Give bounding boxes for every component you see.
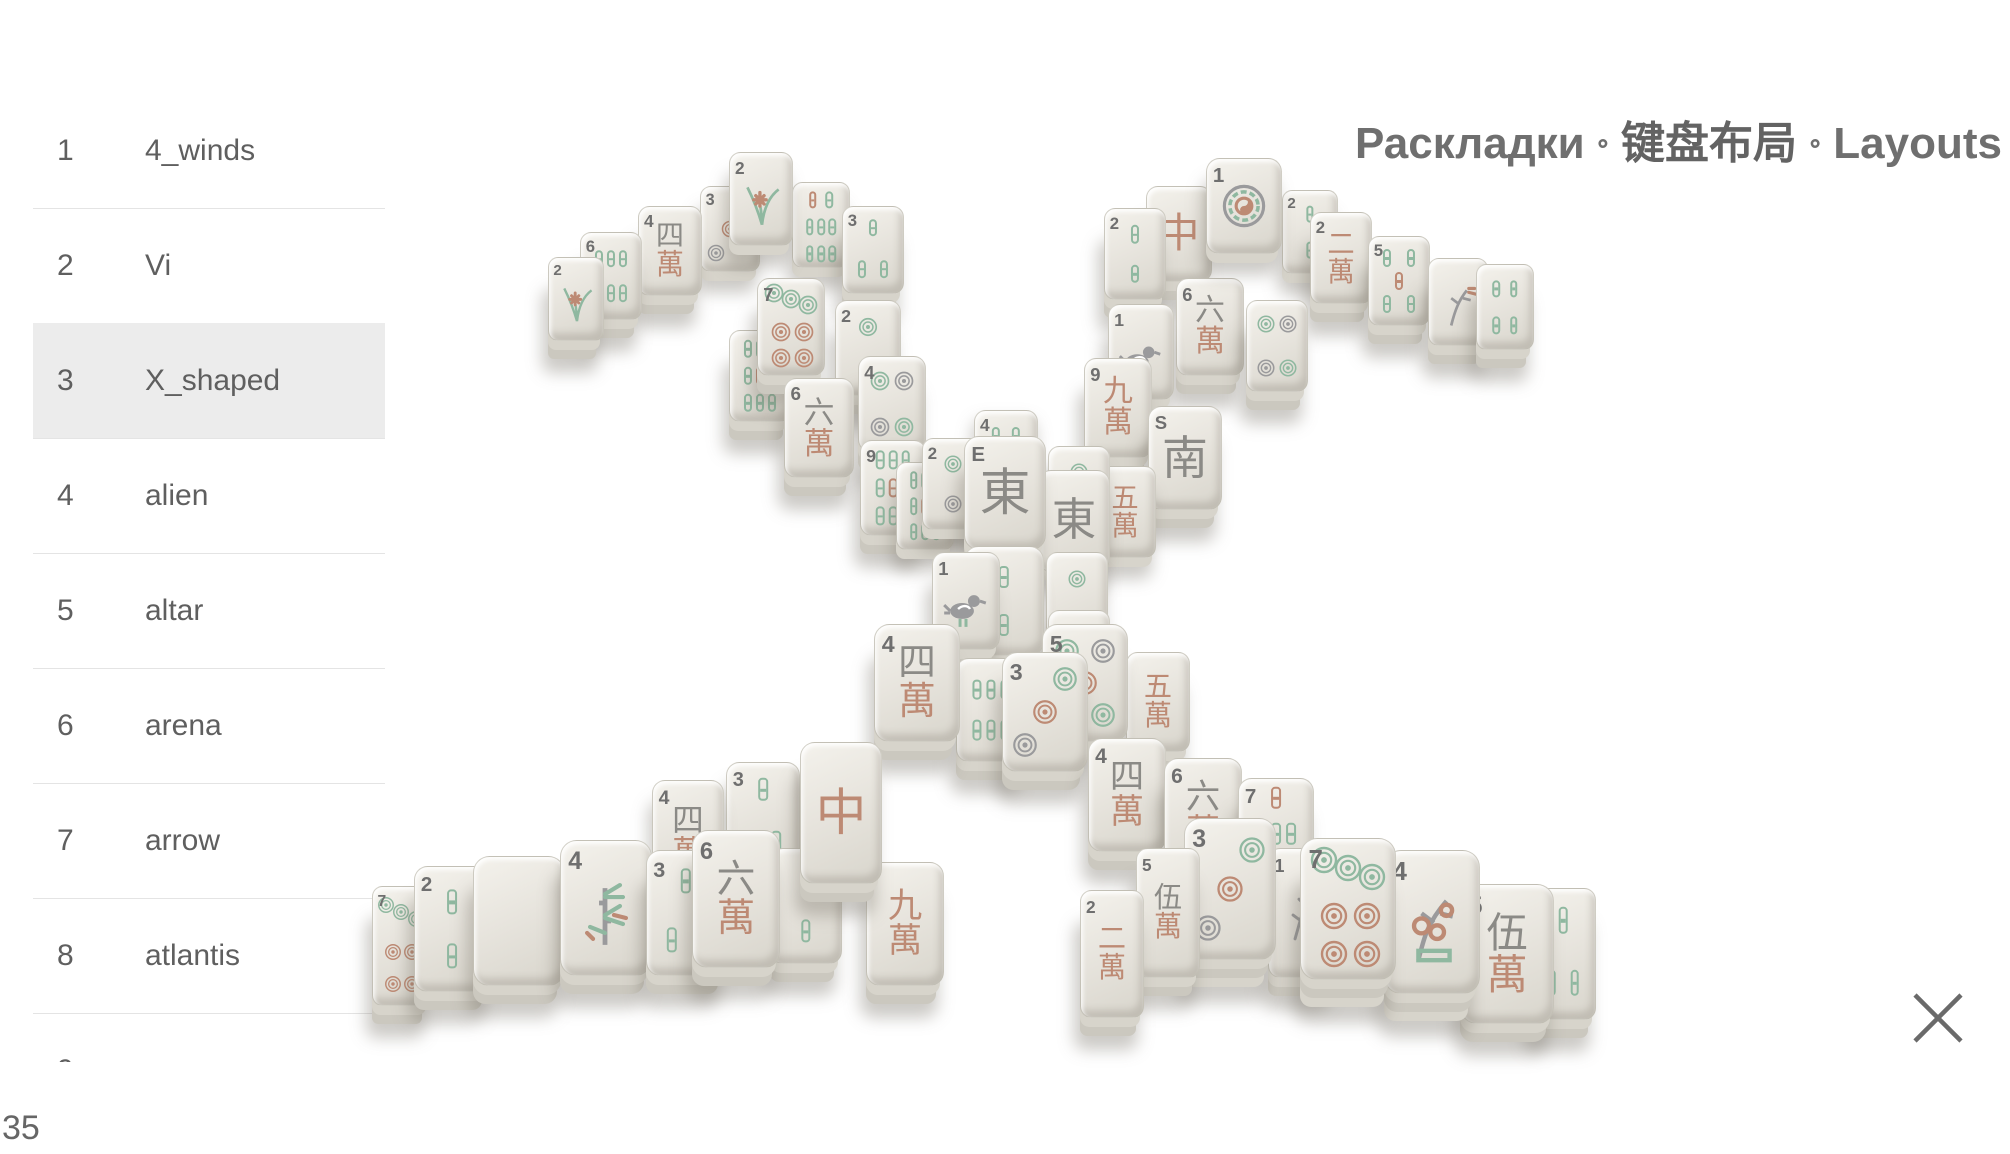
bamboo-stick-icon xyxy=(1383,249,1391,267)
bamboo-notch xyxy=(1409,257,1413,259)
bamboo-stick-icon xyxy=(876,450,885,469)
bamboo-notch xyxy=(912,505,916,507)
tile-rank: 2 xyxy=(553,262,561,279)
dot-icon xyxy=(1257,315,1276,334)
bamboo-stick-icon xyxy=(973,679,982,700)
tile-rank: 4 xyxy=(1095,745,1107,769)
bamboo-notch xyxy=(1561,919,1566,923)
dot-icon xyxy=(798,295,818,315)
bamboo-stick-icon xyxy=(607,250,615,268)
tile-rank: 6 xyxy=(1171,765,1183,789)
tile-rank: 4 xyxy=(644,211,654,232)
bamboo-notch xyxy=(1001,624,1007,627)
mahjong-tile-man-2: 2二萬 xyxy=(1310,212,1372,304)
tile-character: 東 xyxy=(980,467,1031,519)
dot-icon xyxy=(870,416,890,436)
tile-face: 4四萬 xyxy=(1089,739,1165,851)
dot-icon xyxy=(944,495,963,514)
dot-icon xyxy=(1358,862,1387,891)
tile-rank: 3 xyxy=(653,857,665,883)
bamboo-stick-icon xyxy=(826,191,834,208)
dot-icon xyxy=(1238,836,1266,864)
tile-character: 伍 xyxy=(1486,912,1527,954)
bamboo-stick-icon xyxy=(876,507,885,526)
dot-icon xyxy=(858,317,878,337)
bamboo-stick-icon xyxy=(667,928,677,953)
bamboo-stick-icon xyxy=(756,394,764,412)
bamboo-stick-icon xyxy=(801,919,810,942)
mahjong-tile-man-6: 6六萬 xyxy=(692,830,780,968)
bamboo-stick-icon xyxy=(607,284,615,302)
bamboo-notch xyxy=(746,348,750,350)
tile-face: 7 xyxy=(758,279,824,375)
bamboo-stick-icon xyxy=(744,367,752,385)
bamboo-notch xyxy=(988,689,993,692)
tile-rank: 4 xyxy=(980,415,990,436)
dot-icon xyxy=(1220,182,1267,229)
bamboo-notch xyxy=(878,487,883,489)
mahjong-tile-dots-1: 1 xyxy=(1206,158,1282,254)
tile-rank: 7 xyxy=(763,284,773,306)
dot-icon xyxy=(1279,315,1298,334)
tile-face: 4四萬 xyxy=(639,207,701,295)
bamboo-stick-icon xyxy=(889,450,898,469)
tile-character: 六 xyxy=(1195,296,1225,327)
bamboo-notch xyxy=(912,480,916,482)
bamboo-stick-icon xyxy=(1131,265,1139,283)
bamboo-notch xyxy=(830,253,834,255)
dot-icon xyxy=(1068,570,1087,589)
dot-icon xyxy=(1352,939,1381,968)
dot-icon xyxy=(794,322,814,342)
bamboo-notch xyxy=(449,901,455,904)
mahjong-tile-bamboo-2: 2 xyxy=(1104,208,1166,300)
tile-rank: 3 xyxy=(1010,659,1023,686)
bamboo-notch xyxy=(860,268,864,270)
mahjong-tile-man-9: 9九萬 xyxy=(1084,358,1152,458)
bamboo-stick-icon xyxy=(744,340,752,358)
dot-icon xyxy=(894,371,914,391)
dot-icon xyxy=(384,975,401,992)
bamboo-notch xyxy=(1494,288,1498,290)
tile-face xyxy=(793,183,849,267)
bamboo-notch xyxy=(1512,325,1516,327)
bamboo-notch xyxy=(746,375,750,377)
bamboo-stick-icon xyxy=(806,218,814,235)
tile-character: 萬 xyxy=(804,428,835,459)
dot-icon xyxy=(1257,358,1276,377)
tile-character: 萬 xyxy=(1144,702,1172,731)
bamboo-stick-icon xyxy=(1510,280,1518,297)
wind-letter: E xyxy=(971,443,985,467)
bamboo-notch xyxy=(808,226,812,228)
tile-character: 六 xyxy=(717,860,756,899)
bamboo-notch xyxy=(1385,303,1389,305)
bamboo-stick-icon xyxy=(1271,786,1281,808)
tile-face: 3 xyxy=(843,207,903,293)
tile-rank: 4 xyxy=(659,787,670,810)
tile-face: S南 xyxy=(1149,407,1221,509)
mahjong-tile-man-2: 2二萬 xyxy=(1080,890,1144,1018)
bamboo-notch xyxy=(1572,981,1577,985)
tile-rank: 6 xyxy=(1182,284,1192,306)
bamboo-stick-icon xyxy=(1383,295,1391,313)
tile-face: 2二萬 xyxy=(1081,891,1143,1017)
tile-character: 萬 xyxy=(898,683,936,722)
mahjong-tile-bamboo-3: 3 xyxy=(842,206,904,294)
dot-icon xyxy=(1091,703,1117,729)
bamboo-notch xyxy=(669,939,675,942)
tile-character: 四 xyxy=(1110,760,1144,795)
bamboo-notch xyxy=(760,788,766,791)
bamboo-notch xyxy=(683,880,689,883)
dot-icon xyxy=(1319,902,1348,931)
tile-rank: 7 xyxy=(1245,785,1256,809)
dot-icon xyxy=(1352,902,1381,931)
tile-character: 萬 xyxy=(1111,512,1138,540)
tile-face: 4 xyxy=(1385,851,1479,993)
tile-rank: 4 xyxy=(568,848,582,876)
tile-character: 六 xyxy=(1186,780,1220,815)
mahjong-tile-flower-2: 2 xyxy=(548,257,604,341)
bamboo-stick-icon xyxy=(681,868,691,893)
bamboo-stick-icon xyxy=(1570,969,1579,995)
bamboo-stick-icon xyxy=(809,191,817,208)
bamboo-notch xyxy=(1409,303,1413,305)
dot-icon xyxy=(944,455,963,474)
mahjong-tile-wind: S南 xyxy=(1148,406,1222,510)
tile-rank: 9 xyxy=(1090,364,1100,386)
bamboo-stick-icon xyxy=(880,260,888,278)
bamboo-notch xyxy=(1133,233,1137,235)
bamboo-notch xyxy=(882,268,886,270)
bamboo-stick-icon xyxy=(910,523,918,541)
bamboo-stick-icon xyxy=(806,245,814,262)
mahjong-tile-dots-7: 7 xyxy=(1300,838,1396,980)
tile-rank: 2 xyxy=(421,873,432,897)
bamboo-notch xyxy=(1133,273,1137,275)
tile-face: 6六萬 xyxy=(785,379,853,477)
bamboo-stick-icon xyxy=(828,218,836,235)
bamboo-notch xyxy=(891,515,896,517)
bamboo-stick-icon xyxy=(999,566,1009,588)
tile-rank: 9 xyxy=(866,446,876,467)
bamboo-notch xyxy=(449,955,455,958)
bamboo-stick-icon xyxy=(876,478,885,497)
tile-rank: 1 xyxy=(938,558,948,580)
bamboo-notch xyxy=(878,459,883,461)
mahjong-tile-flower-4: 4 xyxy=(560,840,652,976)
tile-face: 4 xyxy=(859,357,925,451)
tile-face: 中 xyxy=(801,743,881,883)
tile-character: 五 xyxy=(1111,484,1138,512)
tile-character: 二 xyxy=(1098,925,1126,954)
tile-rank: 3 xyxy=(706,191,715,210)
mahjong-tile-flower-4: 4 xyxy=(1384,850,1480,994)
bamboo-notch xyxy=(1273,797,1279,800)
tile-rank: 3 xyxy=(733,769,744,792)
bamboo-notch xyxy=(891,487,896,489)
tile-character: 九 xyxy=(1103,377,1133,408)
bamboo-stick-icon xyxy=(619,250,627,268)
tile-rank: 2 xyxy=(841,306,851,327)
bamboo-stick-icon xyxy=(1492,280,1500,297)
dot-icon xyxy=(384,943,401,960)
tile-character: 二 xyxy=(1327,230,1354,258)
tile-face xyxy=(1247,301,1307,391)
bamboo-stick-icon xyxy=(1131,225,1139,243)
bamboo-notch xyxy=(811,199,815,201)
bamboo-notch xyxy=(830,226,834,228)
mahjong-tile-blank xyxy=(473,856,565,986)
mahjong-tile-man-4: 4四萬 xyxy=(874,624,960,742)
tile-character: 萬 xyxy=(1327,258,1354,286)
tile-characters: 中 xyxy=(801,743,881,883)
bamboo-notch xyxy=(609,293,613,295)
bamboo-stick-icon xyxy=(768,394,776,412)
tile-rank: 6 xyxy=(790,384,801,406)
tile-rank: 4 xyxy=(882,631,895,658)
tile-character: 萬 xyxy=(656,251,684,280)
bamboo-notch xyxy=(1001,576,1007,579)
tile-character: 萬 xyxy=(1098,954,1126,983)
tile-character: 五 xyxy=(1144,673,1172,702)
tile-rank: 1 xyxy=(1213,164,1224,188)
mahjong-tile-bamboo-5: 5 xyxy=(1368,236,1430,326)
bamboo-notch xyxy=(1288,833,1294,836)
bamboo-stick-icon xyxy=(744,394,752,412)
bamboo-notch xyxy=(1385,257,1389,259)
tile-face: E東 xyxy=(965,437,1045,549)
bamboo-stick-icon xyxy=(1407,295,1415,313)
bamboo-notch xyxy=(912,531,916,533)
tile-face: 1 xyxy=(1207,159,1281,253)
bamboo-notch xyxy=(819,253,823,255)
tile-character: 萬 xyxy=(1486,954,1527,996)
bamboo-notch xyxy=(923,531,927,533)
bamboo-notch xyxy=(803,930,808,933)
tile-rank: 5 xyxy=(1374,241,1383,261)
tile-rank: 2 xyxy=(1287,195,1295,212)
mahjong-tile-man-5: 5伍萬 xyxy=(1136,848,1200,978)
bamboo-notch xyxy=(828,199,832,201)
mahjong-tile-dots-7: 7 xyxy=(757,278,825,376)
bamboo-stick-icon xyxy=(858,260,866,278)
tile-character: 四 xyxy=(898,644,936,683)
mahjong-tile-flower-2: 2 xyxy=(729,152,793,246)
bamboo-stick-icon xyxy=(1407,249,1415,267)
tile-rank: 3 xyxy=(848,211,857,231)
tile-face: 2 xyxy=(730,153,792,245)
tile-rank: 4 xyxy=(864,362,874,384)
bamboo-stick-icon xyxy=(869,219,877,237)
mahjong-tile-man-6: 6六萬 xyxy=(784,378,854,478)
bamboo-notch xyxy=(1397,280,1401,282)
mahjong-tile-dragon: 中 xyxy=(800,742,882,884)
dot-icon xyxy=(1216,875,1244,903)
flower-bamboo-icon xyxy=(572,862,644,968)
mahjong-tile-wind: E東 xyxy=(964,436,1046,550)
tile-character: 萬 xyxy=(1195,327,1225,358)
tile-face: 2二萬 xyxy=(1311,213,1371,303)
bamboo-notch xyxy=(878,515,883,517)
tile-rank: 1 xyxy=(1114,310,1124,331)
close-button[interactable] xyxy=(1908,988,1968,1048)
bamboo-notch xyxy=(975,730,980,733)
dot-icon xyxy=(1012,732,1038,758)
bamboo-stick-icon xyxy=(1510,317,1518,334)
bamboo-notch xyxy=(609,258,613,260)
tile-rank: 5 xyxy=(1142,855,1152,876)
tile-face: 6六萬 xyxy=(693,831,779,967)
mahjong-tile-dots-4: 4 xyxy=(858,356,926,452)
bamboo-stick-icon xyxy=(447,889,457,914)
tile-rank: 2 xyxy=(1110,214,1119,234)
mahjong-tile-man-4: 4四萬 xyxy=(1088,738,1166,852)
bamboo-stick-icon xyxy=(1286,823,1296,845)
tile-rank: 2 xyxy=(1316,218,1325,238)
bamboo-notch xyxy=(934,531,938,533)
tile-face: 5 xyxy=(1369,237,1429,325)
layout-count: 35 xyxy=(2,1109,40,1148)
dot-icon xyxy=(794,348,814,368)
bamboo-stick-icon xyxy=(910,471,918,489)
tile-rank: 2 xyxy=(1086,897,1096,918)
dot-icon xyxy=(894,416,914,436)
bamboo-notch xyxy=(758,375,762,377)
bamboo-stick-icon xyxy=(1559,907,1568,933)
tile-face: 3 xyxy=(1003,653,1087,771)
tile-face: 5伍萬 xyxy=(1137,849,1199,977)
flower-orchid-icon xyxy=(555,270,599,336)
bamboo-notch xyxy=(758,402,762,404)
bamboo-stick-icon xyxy=(817,218,825,235)
wind-letter: S xyxy=(1155,412,1167,434)
bamboo-stick-icon xyxy=(758,778,768,800)
layout-preview-board: 2 64四萬3 2 37 xyxy=(0,0,2010,1154)
mahjong-tile-bamboo xyxy=(1476,264,1534,350)
mahjong-tile-man-4: 4四萬 xyxy=(638,206,702,296)
tile-face: 6六萬 xyxy=(1177,279,1243,375)
tile-rank: 2 xyxy=(928,444,937,464)
dot-icon xyxy=(1052,666,1078,692)
tile-character: 萬 xyxy=(1103,408,1133,439)
mahjong-tile-dots xyxy=(1246,300,1308,392)
tile-character: 南 xyxy=(1162,435,1208,482)
bamboo-stick-icon xyxy=(910,497,918,515)
bamboo-stick-icon xyxy=(986,720,995,741)
bamboo-notch xyxy=(746,402,750,404)
bamboo-stick-icon xyxy=(447,944,457,969)
flower-orchid-icon xyxy=(737,167,787,240)
tile-character: 六 xyxy=(804,397,835,428)
bamboo-stick-icon xyxy=(1395,272,1403,290)
bamboo-stick-icon xyxy=(986,679,995,700)
dot-icon xyxy=(1091,638,1117,664)
mahjong-tile-man-6: 6六萬 xyxy=(1176,278,1244,376)
tile-character: 九 xyxy=(888,889,922,924)
tile-face: 7 xyxy=(1301,839,1395,979)
tile-rank: 6 xyxy=(700,838,713,866)
dot-icon xyxy=(1319,939,1348,968)
bamboo-stick-icon xyxy=(817,245,825,262)
dot-icon xyxy=(1032,699,1058,725)
mahjong-tile-man: 五萬 xyxy=(1126,652,1190,752)
flower-plum-icon xyxy=(1396,873,1471,985)
tile-character: 東 xyxy=(1052,498,1097,544)
bamboo-notch xyxy=(891,459,896,461)
tile-character: 伍 xyxy=(1154,884,1182,913)
bamboo-notch xyxy=(1494,325,1498,327)
bamboo-notch xyxy=(1512,288,1516,290)
bamboo-notch xyxy=(819,226,823,228)
bamboo-stick-icon xyxy=(619,284,627,302)
bamboo-notch xyxy=(988,730,993,733)
tile-rank: 2 xyxy=(735,158,745,179)
bamboo-notch xyxy=(808,253,812,255)
tile-rank: 6 xyxy=(586,237,595,257)
tile-character: 萬 xyxy=(1110,795,1144,830)
bamboo-notch xyxy=(621,293,625,295)
tile-face: 五萬 xyxy=(1127,653,1189,751)
tile-face xyxy=(1477,265,1533,349)
dot-icon xyxy=(1279,358,1298,377)
tile-face: 4 xyxy=(561,841,651,975)
tile-character: 四 xyxy=(656,222,684,251)
tile-face: 9九萬 xyxy=(1085,359,1151,457)
dot-icon xyxy=(771,348,791,368)
bamboo-stick-icon xyxy=(999,614,1009,636)
close-icon xyxy=(1908,988,1968,1048)
dot-icon xyxy=(771,322,791,342)
bamboo-notch xyxy=(871,227,875,229)
bamboo-notch xyxy=(975,689,980,692)
bamboo-notch xyxy=(621,258,625,260)
bamboo-stick-icon xyxy=(1492,317,1500,334)
tile-face: 4四萬 xyxy=(875,625,959,741)
dot-icon xyxy=(707,244,725,262)
tile-character: 萬 xyxy=(717,899,756,938)
tile-characters: 五萬 xyxy=(1127,653,1189,751)
tile-rank: 7 xyxy=(1309,846,1323,875)
bamboo-stick-icon xyxy=(828,245,836,262)
tile-face: 2 xyxy=(549,258,603,340)
bamboo-notch xyxy=(770,402,774,404)
bamboo-stick-icon xyxy=(973,720,982,741)
tile-face: 2 xyxy=(1105,209,1165,299)
tile-character: 萬 xyxy=(1154,913,1182,942)
tile-character: 中 xyxy=(816,787,867,839)
tile-face xyxy=(474,857,564,985)
tile-rank: 7 xyxy=(377,893,386,911)
tile-character: 萬 xyxy=(888,924,922,959)
mahjong-tile-dots-3: 3 xyxy=(1002,652,1088,772)
